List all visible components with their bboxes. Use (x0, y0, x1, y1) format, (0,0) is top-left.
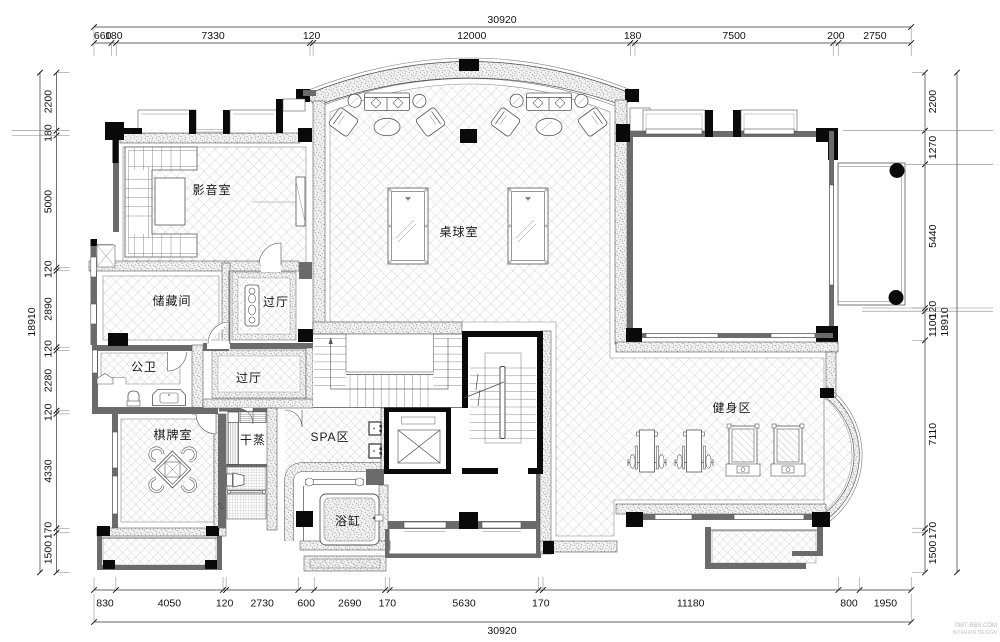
svg-text:11180: 11180 (677, 598, 705, 610)
svg-text:4330: 4330 (43, 459, 55, 483)
svg-text:影音室: 影音室 (192, 182, 231, 197)
svg-text:公卫: 公卫 (131, 360, 157, 374)
svg-text:1100: 1100 (927, 314, 939, 337)
svg-text:120: 120 (43, 340, 55, 358)
svg-text:120: 120 (43, 260, 55, 278)
svg-text:7110: 7110 (927, 423, 939, 446)
svg-text:7330: 7330 (201, 30, 225, 42)
svg-text:5630: 5630 (452, 598, 476, 610)
svg-text:1950: 1950 (874, 598, 898, 610)
svg-text:5440: 5440 (927, 224, 939, 248)
svg-text:180: 180 (624, 30, 642, 42)
svg-text:170: 170 (379, 598, 397, 610)
svg-text:储藏间: 储藏间 (152, 293, 191, 308)
svg-text:120: 120 (43, 403, 55, 421)
svg-text:1270: 1270 (927, 136, 939, 160)
svg-text:2690: 2690 (338, 598, 362, 610)
svg-text:120: 120 (216, 598, 234, 610)
svg-text:SPA区: SPA区 (310, 430, 349, 444)
svg-text:30920: 30920 (487, 625, 516, 637)
svg-text:健身区: 健身区 (712, 400, 751, 415)
svg-text:1500: 1500 (927, 541, 939, 565)
svg-text:2200: 2200 (43, 90, 55, 114)
svg-text:桌球室: 桌球室 (439, 224, 478, 239)
svg-text:170: 170 (532, 598, 550, 610)
svg-text:INTERIOR DESIGN: INTERIOR DESIGN (953, 630, 998, 636)
svg-text:800: 800 (840, 598, 858, 610)
svg-text:12000: 12000 (457, 30, 486, 42)
svg-text:600: 600 (297, 598, 315, 610)
svg-text:干蒸: 干蒸 (240, 433, 266, 447)
svg-text:棋牌室: 棋牌室 (153, 427, 192, 442)
svg-text:2750: 2750 (863, 30, 887, 42)
svg-text:过厅: 过厅 (263, 295, 289, 309)
svg-text:30920: 30920 (487, 14, 516, 26)
svg-text:过厅: 过厅 (236, 371, 262, 385)
svg-text:2200: 2200 (927, 90, 939, 114)
svg-text:200: 200 (827, 30, 845, 42)
svg-text:18910: 18910 (26, 307, 38, 336)
svg-text:©MT-BBS.COM: ©MT-BBS.COM (955, 622, 997, 629)
svg-text:180: 180 (43, 124, 55, 142)
svg-text:4050: 4050 (158, 598, 182, 610)
svg-text:2730: 2730 (251, 598, 275, 610)
svg-text:2890: 2890 (43, 297, 55, 321)
svg-text:830: 830 (96, 598, 114, 610)
svg-text:浴缸: 浴缸 (335, 513, 361, 528)
svg-text:7500: 7500 (722, 30, 746, 42)
svg-text:5000: 5000 (43, 190, 55, 214)
svg-text:170: 170 (43, 522, 55, 540)
svg-text:2280: 2280 (43, 369, 55, 393)
svg-text:120: 120 (303, 30, 321, 42)
svg-text:180: 180 (105, 30, 123, 42)
svg-text:170: 170 (927, 522, 939, 540)
svg-text:18910: 18910 (939, 307, 951, 336)
svg-text:1500: 1500 (43, 541, 55, 565)
